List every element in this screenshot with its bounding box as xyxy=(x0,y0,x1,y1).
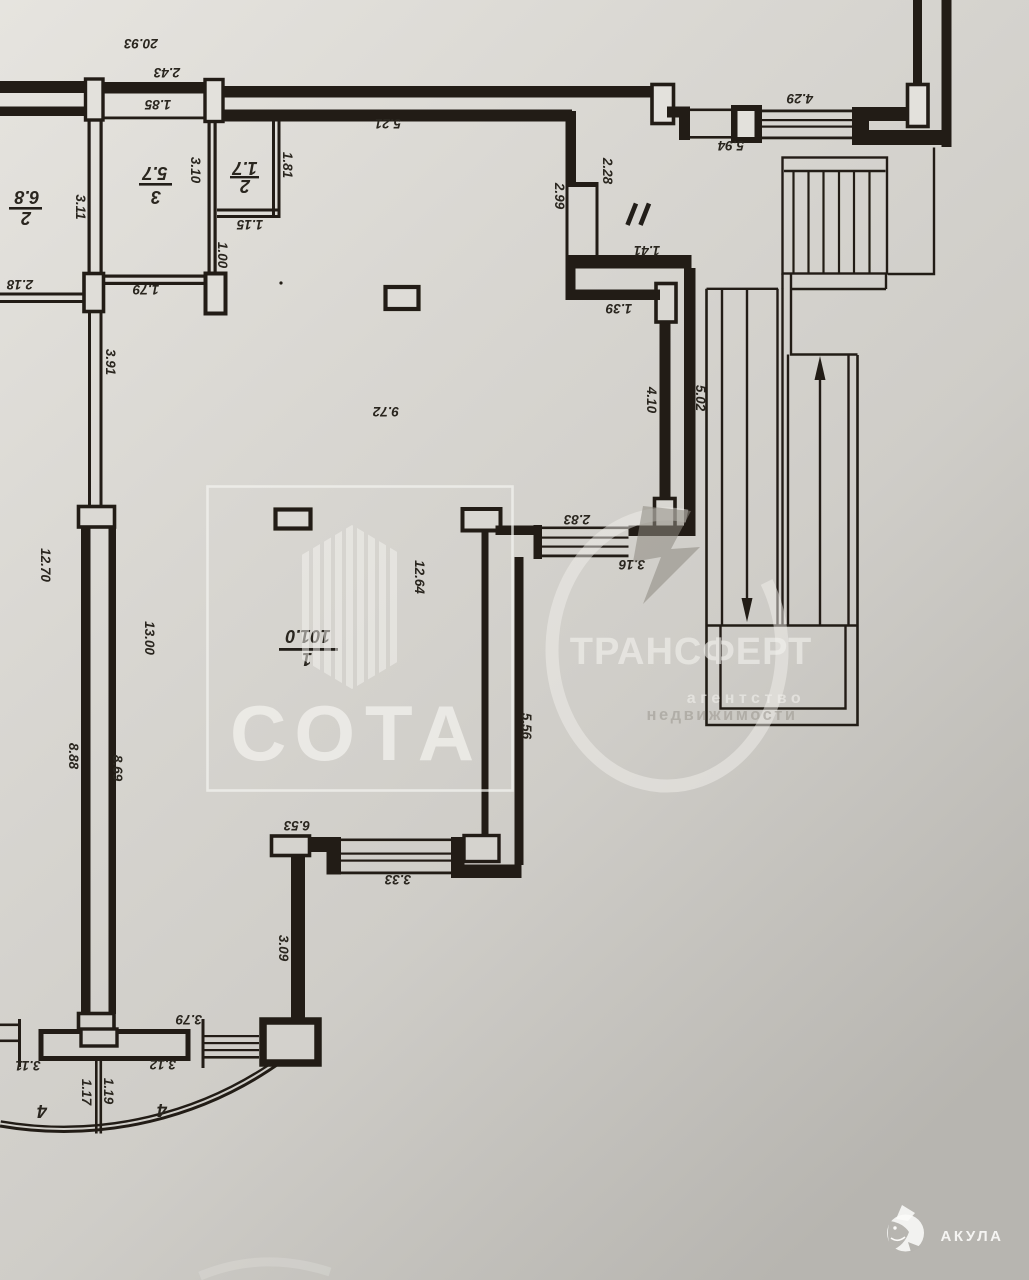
svg-text:3.11: 3.11 xyxy=(73,194,88,219)
svg-text:3.10: 3.10 xyxy=(188,157,203,184)
svg-text:2.43: 2.43 xyxy=(153,65,181,80)
svg-text:2: 2 xyxy=(21,208,32,228)
svg-text:8.69: 8.69 xyxy=(110,755,125,782)
svg-text:4.29: 4.29 xyxy=(786,91,814,106)
svg-text:4: 4 xyxy=(157,1100,168,1120)
svg-text:20.93: 20.93 xyxy=(124,36,159,51)
svg-text:СОТА: СОТА xyxy=(230,689,484,777)
svg-text:9.72: 9.72 xyxy=(372,404,399,419)
svg-text:3.11: 3.11 xyxy=(15,1058,40,1073)
svg-text:4: 4 xyxy=(37,1101,48,1121)
svg-text:1.19: 1.19 xyxy=(101,1078,116,1105)
svg-text:12.64: 12.64 xyxy=(412,560,427,594)
svg-text:1.79: 1.79 xyxy=(132,282,159,297)
svg-text:агентство: агентство xyxy=(687,690,805,707)
svg-text:12.70: 12.70 xyxy=(38,548,53,582)
svg-text:5.94: 5.94 xyxy=(717,138,744,153)
svg-text:3: 3 xyxy=(151,187,161,207)
svg-text:АКУЛА: АКУЛА xyxy=(941,1228,1004,1245)
svg-text:2.18: 2.18 xyxy=(6,277,34,292)
svg-text:6.8: 6.8 xyxy=(14,187,39,207)
svg-text:1.39: 1.39 xyxy=(605,301,632,316)
svg-text:3.33: 3.33 xyxy=(384,872,411,887)
svg-text:13.00: 13.00 xyxy=(142,621,157,655)
svg-text:3.09: 3.09 xyxy=(276,935,291,962)
svg-text:1.81: 1.81 xyxy=(280,152,295,178)
svg-text:1.41: 1.41 xyxy=(634,243,660,258)
svg-text:ТРАНСФЕРТ: ТРАНСФЕРТ xyxy=(570,631,812,673)
svg-text:1.7: 1.7 xyxy=(232,158,258,178)
svg-text:3.91: 3.91 xyxy=(103,349,118,375)
svg-text:5.56: 5.56 xyxy=(519,713,534,740)
svg-text:5.02: 5.02 xyxy=(693,385,708,412)
svg-text:2.83: 2.83 xyxy=(563,512,591,527)
svg-text:3.12: 3.12 xyxy=(149,1057,176,1072)
svg-text:8.88: 8.88 xyxy=(66,743,81,770)
svg-text:1.15: 1.15 xyxy=(236,217,263,232)
svg-text:5.21: 5.21 xyxy=(375,116,401,131)
svg-text:4.10: 4.10 xyxy=(644,386,659,414)
svg-text:6.53: 6.53 xyxy=(283,818,310,833)
svg-text:2.99: 2.99 xyxy=(552,182,567,210)
svg-text:2.28: 2.28 xyxy=(600,157,615,185)
svg-text:5.7: 5.7 xyxy=(142,163,168,183)
svg-text:3.79: 3.79 xyxy=(175,1012,202,1027)
svg-text:1.85: 1.85 xyxy=(144,97,171,112)
svg-text:2: 2 xyxy=(240,176,251,196)
svg-text:1.00: 1.00 xyxy=(215,242,230,269)
svg-text:1.17: 1.17 xyxy=(79,1079,94,1107)
svg-text:недвижимости: недвижимости xyxy=(647,706,798,724)
